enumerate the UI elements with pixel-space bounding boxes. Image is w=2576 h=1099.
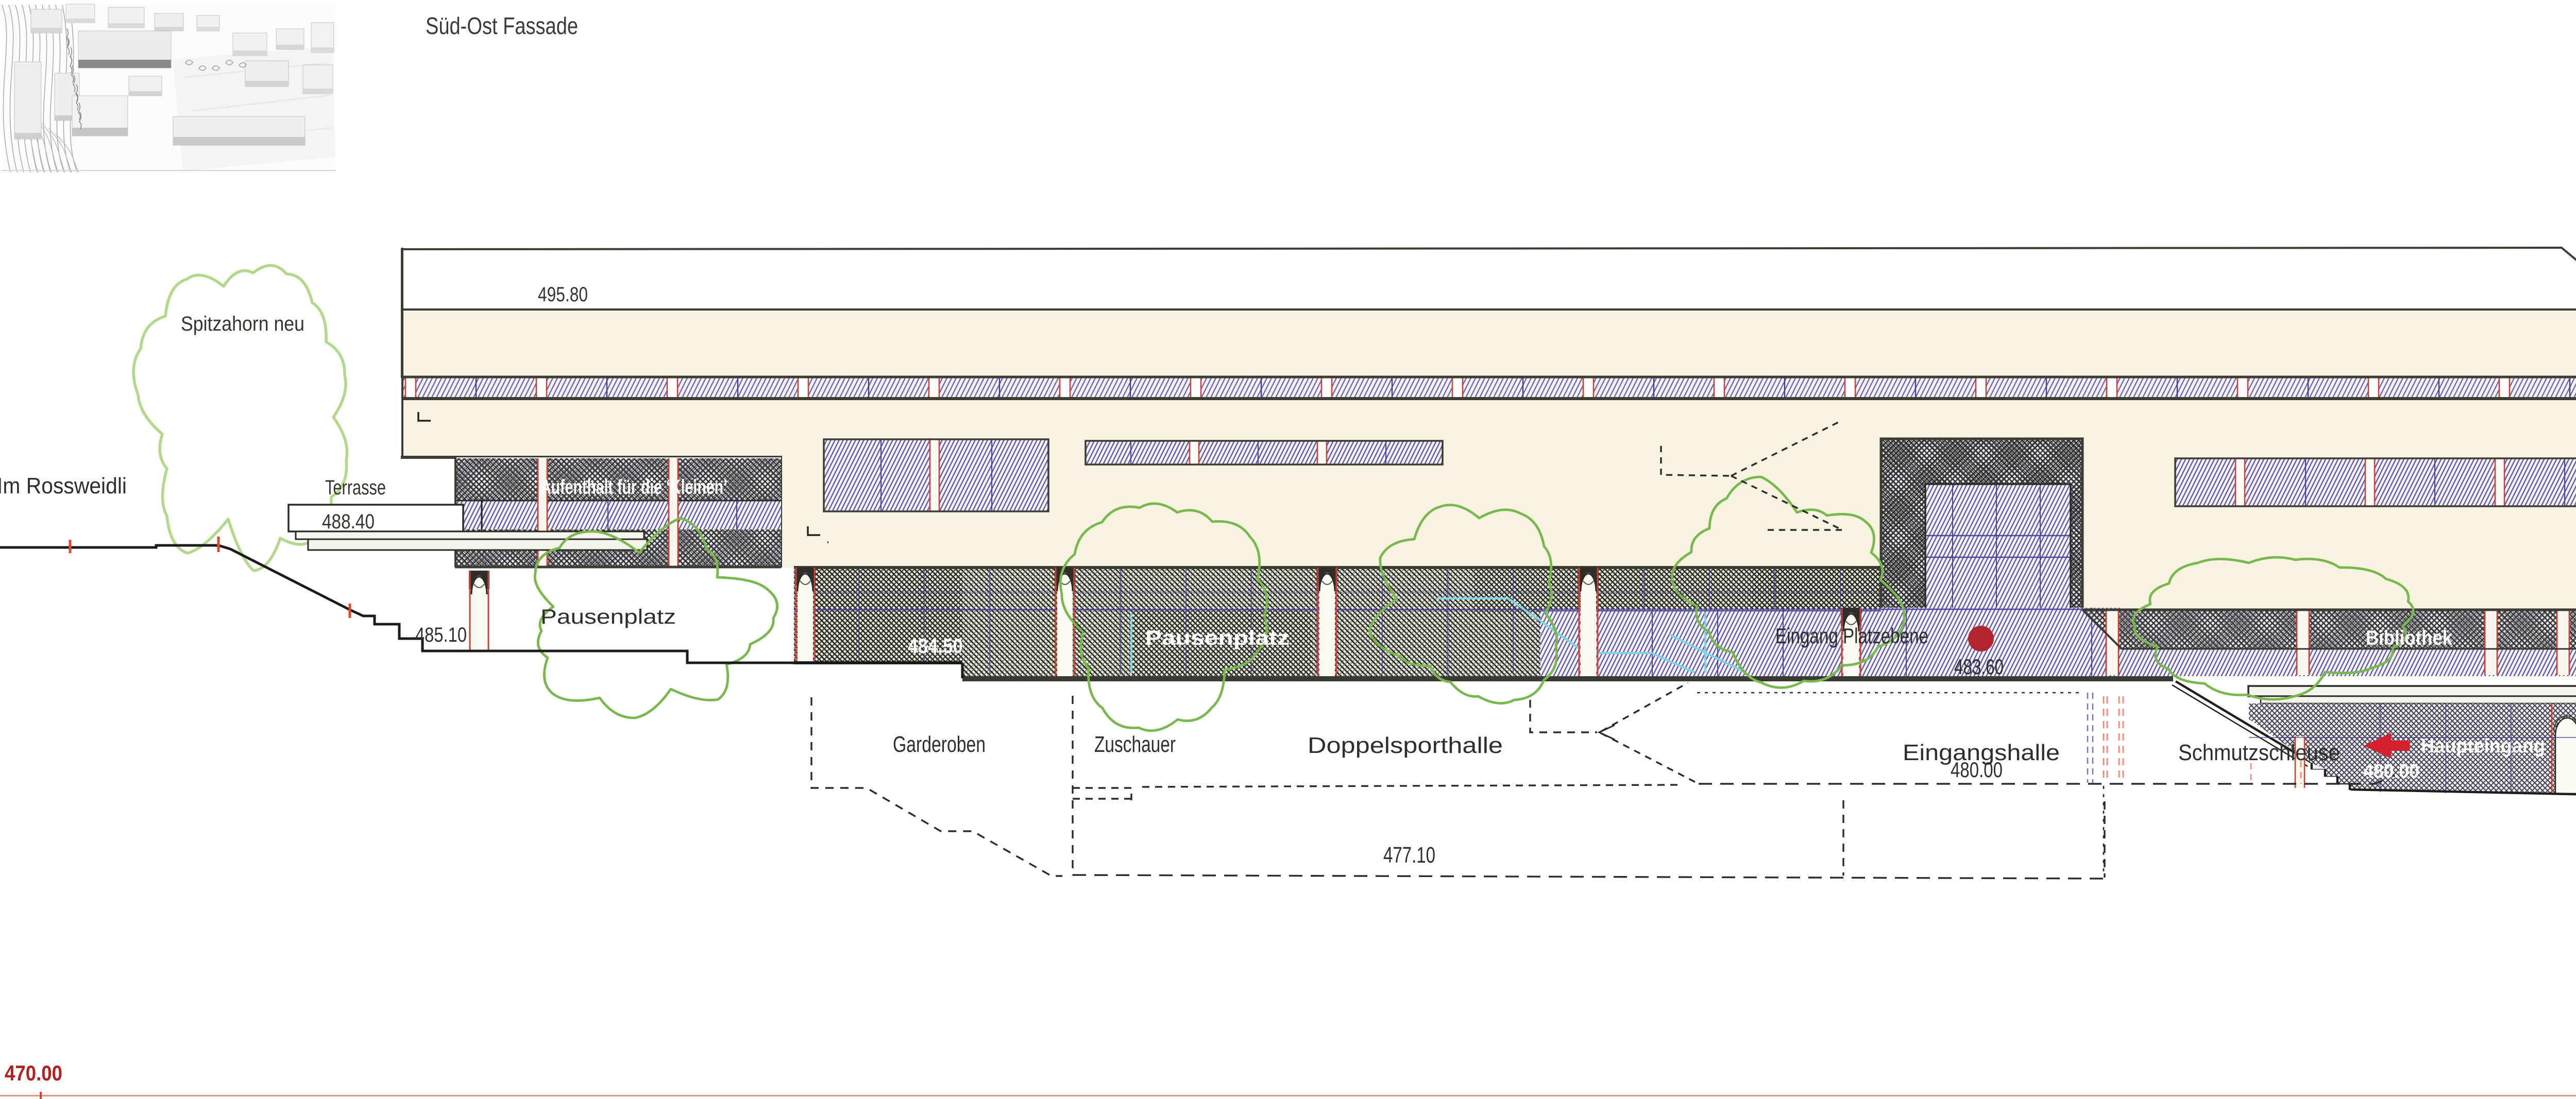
svg-text:Haupteingang: Haupteingang — [2421, 735, 2545, 757]
svg-text:Doppelsporthalle: Doppelsporthalle — [1308, 733, 1503, 758]
svg-text:488.40: 488.40 — [322, 510, 375, 533]
svg-text:Terrasse: Terrasse — [325, 476, 386, 499]
svg-text:Pausenplatz: Pausenplatz — [1145, 627, 1290, 649]
svg-text:Bibliothek: Bibliothek — [2366, 627, 2453, 649]
svg-text:Schmutzschleuse: Schmutzschleuse — [2178, 740, 2340, 765]
svg-text:Im Rossweidli: Im Rossweidli — [0, 473, 127, 499]
svg-text:477.10: 477.10 — [1383, 843, 1435, 868]
svg-text:485.10: 485.10 — [415, 624, 467, 646]
svg-text:Eingang Platzebene: Eingang Platzebene — [1775, 624, 1928, 648]
svg-text:Garderoben: Garderoben — [893, 732, 986, 757]
svg-text:Pausenplatz: Pausenplatz — [540, 606, 676, 628]
svg-text:484.50: 484.50 — [908, 635, 963, 658]
svg-text:Süd-Ost Fassade: Süd-Ost Fassade — [426, 12, 578, 39]
svg-text:470.00: 470.00 — [5, 1061, 62, 1085]
svg-text:480.00: 480.00 — [2363, 761, 2419, 782]
svg-text:Aufenthalt für die ‘Kleinen’: Aufenthalt für die ‘Kleinen’ — [540, 476, 727, 499]
svg-text:483.60: 483.60 — [1954, 655, 2004, 679]
svg-text:Spitzahorn neu: Spitzahorn neu — [181, 313, 304, 335]
svg-text:480.00: 480.00 — [1951, 758, 2003, 782]
svg-text:Zuschauer: Zuschauer — [1094, 732, 1176, 757]
svg-text:495.80: 495.80 — [538, 283, 588, 306]
